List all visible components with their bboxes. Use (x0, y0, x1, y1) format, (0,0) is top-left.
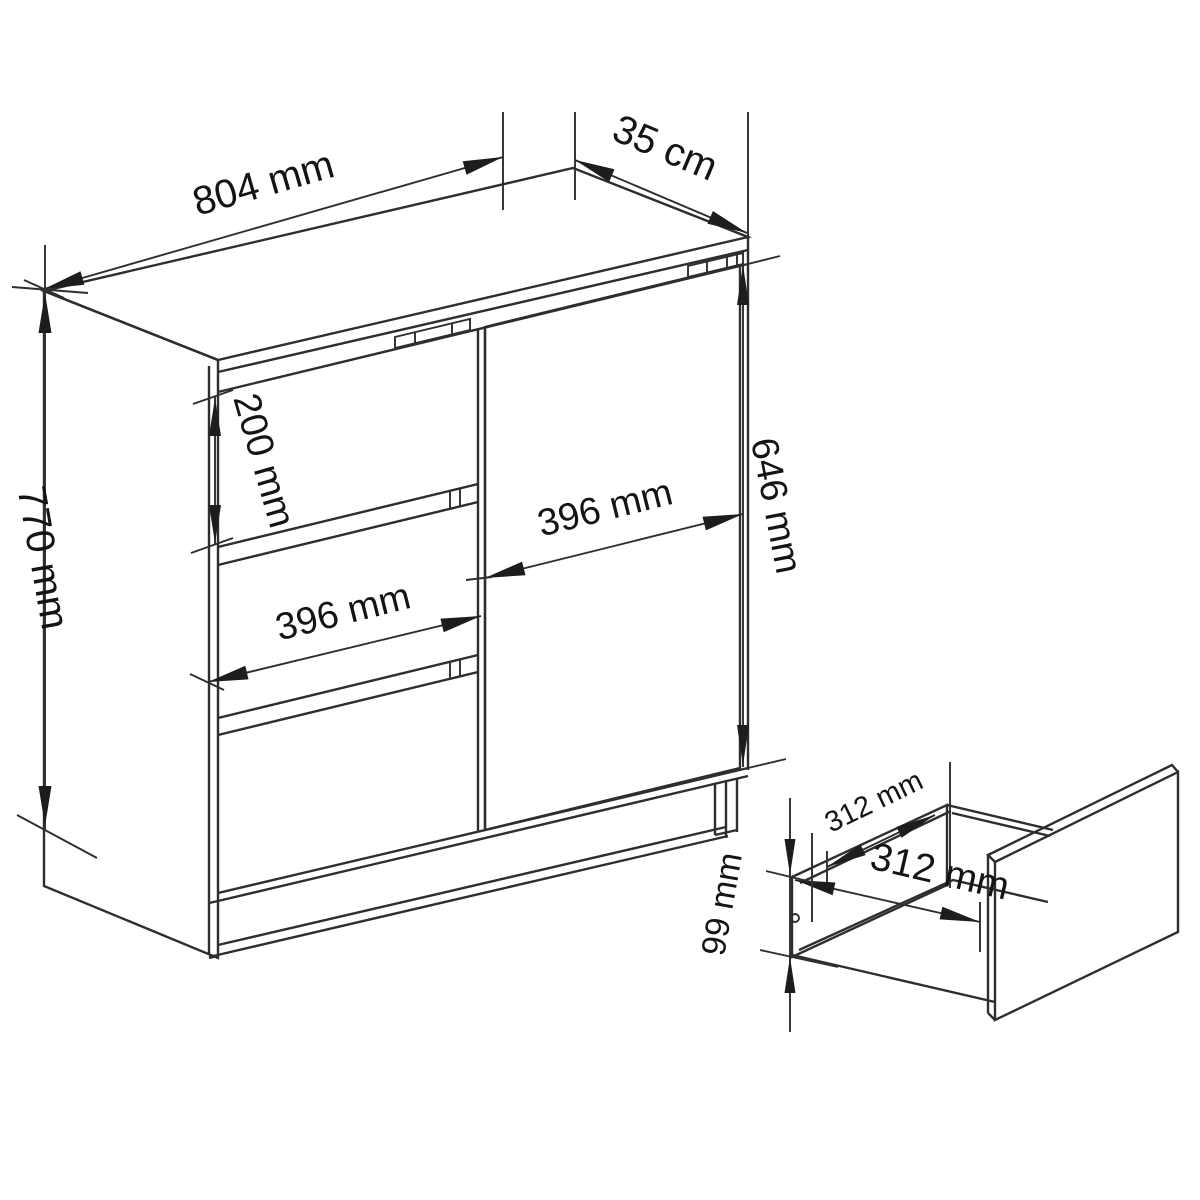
handle-recess-drawer-3 (450, 655, 478, 679)
arrowhead (440, 616, 481, 632)
dim-width: 804 mm (12, 112, 503, 298)
arrowhead (463, 157, 503, 175)
arrowhead (39, 293, 52, 333)
arrowhead (827, 844, 866, 867)
arrowhead (39, 786, 52, 826)
plinth (209, 778, 737, 958)
drawer-interior-bottom (799, 880, 1048, 950)
door-panel (485, 265, 740, 830)
arrowhead (940, 907, 980, 922)
dim-label-door-height: 646 mm (742, 434, 809, 577)
dim-label-drawer-side-height: 99 mm (694, 850, 749, 959)
cabinet-outline (44, 168, 748, 958)
drawer-detail-dimensions: 312 mm 312 mm 99 mm (694, 762, 1013, 1032)
furniture-dimension-diagram: 804 mm 35 cm 770 mm 200 mm (0, 0, 1200, 1200)
cabinet-dimensions: 804 mm 35 cm 770 mm 200 mm (9, 106, 810, 858)
dim-label-top-drawer: 200 mm (224, 389, 302, 533)
dim-label-door-width: 396 mm (533, 471, 676, 545)
dim-drawer-inner-width: 312 mm (795, 833, 1013, 952)
arrowhead (485, 562, 526, 578)
dim-door-width: 396 mm (466, 471, 743, 580)
dim-drawer-width: 396 mm (190, 575, 481, 690)
arrowhead (44, 271, 84, 289)
arrowhead (785, 957, 796, 993)
dim-label-width: 804 mm (188, 142, 339, 224)
arrowhead (703, 514, 744, 530)
drawer-separation-2 (218, 655, 478, 735)
drawer-bottom-edge (792, 955, 995, 1002)
handle-recess-drawer-2 (450, 484, 478, 509)
dim-label-depth: 35 cm (606, 106, 723, 189)
dim-top-drawer: 200 mm (191, 389, 303, 553)
dim-label-drawer-inner-width: 312 mm (866, 835, 1013, 909)
drawer-back-top (947, 805, 1053, 830)
drawer-front-panel-top (988, 765, 1178, 862)
arrowhead (785, 839, 796, 875)
dim-height: 770 mm (9, 289, 97, 858)
dim-label-height: 770 mm (9, 483, 77, 633)
product-dimension-image: 804 mm 35 cm 770 mm 200 mm (0, 0, 1200, 1200)
left-leg (209, 901, 218, 958)
top-board-edge (218, 250, 748, 372)
arrowhead (208, 666, 249, 682)
front-bottom-edge (218, 768, 748, 893)
dim-label-drawer-width: 396 mm (271, 575, 414, 649)
